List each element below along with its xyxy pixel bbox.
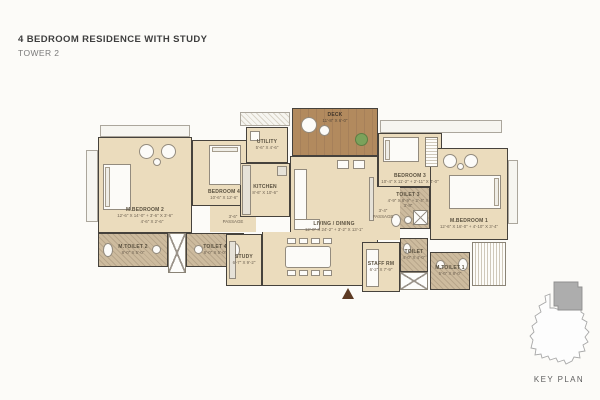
room-dims: 6'-2" X 7'-9"	[370, 267, 393, 272]
room-dims: 11'-8" X 6'-0"	[323, 118, 348, 123]
chair-icon	[161, 144, 176, 159]
page-subtitle: TOWER 2	[18, 48, 59, 58]
room-dims: 8'-6" X 10'-6"	[252, 190, 277, 195]
bed-icon	[449, 175, 501, 209]
dining-chair-icon	[299, 238, 308, 244]
page-title: 4 BEDROOM RESIDENCE WITH STUDY	[18, 34, 207, 45]
room-dims: 4'-0" X 4'-0"	[403, 255, 426, 260]
room-staff-rm: STAFF RM 6'-2" X 7'-9"	[362, 242, 400, 292]
kitchen-counter-icon	[242, 165, 251, 215]
room-dims: 12'-6" X 14'-0" + 3'-6" X 3'-6"	[117, 213, 173, 218]
room-study: STUDY 6'-7" X 9'-2"	[226, 234, 262, 286]
key-plan-highlight	[554, 282, 582, 310]
lounge-chair-icon	[319, 125, 330, 136]
bed-icon	[103, 164, 131, 210]
room-bedroom-3: BEDROOM 3 10'-4" X 11'-2" + 2'-11" X 4'-…	[378, 133, 442, 187]
room-dims: 12'-6" X 16'-0" + 4'-10" X 3'-4"	[440, 224, 498, 229]
sink-icon	[152, 245, 161, 254]
room-kitchen: KITCHEN 8'-6" X 10'-6"	[240, 163, 290, 217]
ledge-top-left	[100, 125, 190, 137]
fridge-icon	[277, 166, 287, 176]
dining-table	[285, 246, 331, 268]
lounge-chair-icon	[301, 117, 317, 133]
room-m-toilet-2: M.TOILET 2 8'-0" X 5'-0"	[98, 233, 168, 267]
room-dims: 4'-9" X 8'-9" + 2'-4" X 3'-8"	[387, 198, 429, 209]
room-m-toilet-1: M.TOILET 1 5'-0" X 8'-0"	[430, 252, 470, 290]
lift-shaft	[168, 233, 186, 273]
armchair-icon	[337, 160, 349, 169]
dressing-dims: 4'-6" X 2'-6"	[130, 219, 174, 224]
ledge-left	[86, 150, 98, 222]
service-ledge	[240, 112, 290, 126]
sofa-icon	[294, 169, 307, 221]
room-m-bedroom-1: M.BEDROOM 1 12'-6" X 16'-0" + 4'-10" X 3…	[430, 148, 508, 240]
room-dims: 12'-0" X 24'-2" + 3'-2" X 13'-1"	[305, 227, 363, 232]
dining-chair-icon	[311, 270, 320, 276]
room-dims: 10'-6" X 12'-6"	[210, 195, 238, 200]
bed-icon	[209, 145, 241, 185]
room-utility: UTILITY 5'-6" X 4'-6"	[246, 127, 288, 163]
room-dims: 8'-0" X 5'-0"	[122, 250, 145, 255]
room-dims: 10'-4" X 11'-2" + 2'-11" X 4'-0"	[381, 179, 438, 184]
dining-chair-icon	[311, 238, 320, 244]
dining-chair-icon	[323, 238, 332, 244]
chair-icon	[464, 154, 478, 168]
dining-chair-icon	[287, 270, 296, 276]
ledge-top-right	[380, 120, 502, 133]
duct	[400, 272, 428, 290]
room-dims: 5'-6" X 4'-6"	[256, 145, 279, 150]
chair-icon	[443, 154, 457, 168]
pillow-icon	[105, 167, 110, 207]
dining-chair-icon	[323, 270, 332, 276]
ledge-right	[508, 160, 518, 224]
sink-icon	[194, 245, 203, 254]
shower-icon	[413, 210, 428, 225]
room-dims: 5'-0" X 8'-0"	[439, 271, 462, 276]
entry-arrow-icon	[342, 288, 354, 299]
key-plan-label: KEY PLAN	[524, 375, 594, 384]
passage-label: PASSAGE	[373, 214, 394, 219]
key-plan: KEY PLAN	[524, 280, 594, 384]
wc-icon	[103, 243, 113, 257]
floor-plan-page: 4 BEDROOM RESIDENCE WITH STUDY TOWER 2 M…	[0, 0, 600, 400]
key-plan-outline	[524, 280, 594, 368]
wardrobe-icon	[425, 137, 438, 167]
room-staff-toilet: TOILET 4'-0" X 4'-0"	[400, 238, 428, 272]
chair-icon	[139, 144, 154, 159]
pillow-icon	[385, 140, 390, 160]
bed-icon	[383, 137, 419, 162]
pillow-icon	[494, 178, 499, 206]
side-table-icon	[153, 158, 161, 166]
dining-chair-icon	[287, 238, 296, 244]
passage-label: PASSAGE	[223, 219, 244, 224]
armchair-icon	[353, 160, 365, 169]
room-dims: 6'-7" X 9'-2"	[233, 260, 256, 265]
room-dims: 8'-0" X 5'-0"	[204, 250, 227, 255]
side-table-icon	[457, 163, 464, 170]
room-living-dining: LIVING / DINING 12'-0" X 24'-2" + 3'-2" …	[290, 156, 378, 234]
plant-icon	[355, 133, 368, 146]
room-deck: DECK 11'-8" X 6'-0"	[292, 108, 378, 156]
wardrobe-icon	[472, 242, 506, 286]
dining-chair-icon	[299, 270, 308, 276]
sink-icon	[404, 216, 412, 224]
room-dining-area	[262, 232, 378, 286]
pillow-icon	[212, 147, 238, 152]
